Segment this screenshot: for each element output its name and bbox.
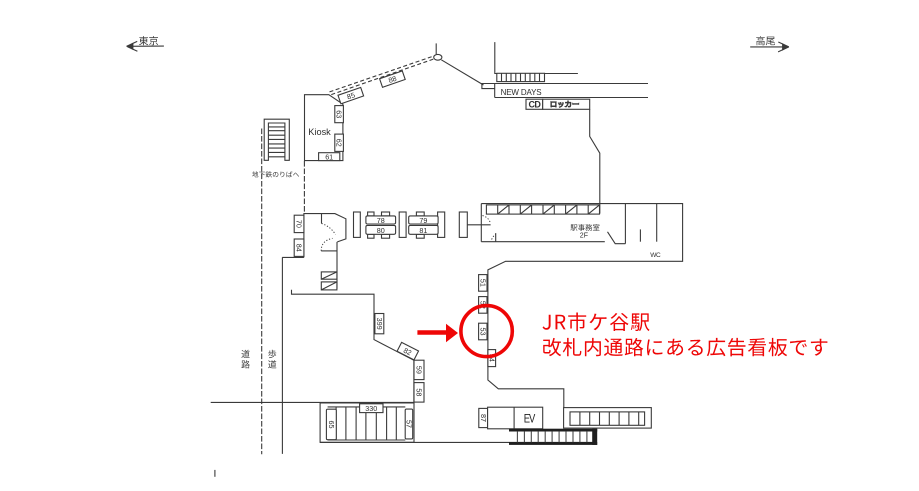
svg-text:78: 78 [377, 216, 385, 225]
svg-text:59: 59 [415, 366, 424, 374]
svg-text:53: 53 [478, 328, 487, 336]
svg-text:399: 399 [375, 318, 384, 330]
svg-text:NEW DAYS: NEW DAYS [501, 88, 542, 97]
svg-text:51: 51 [478, 279, 487, 287]
svg-text:2F: 2F [580, 233, 588, 240]
svg-text:CD: CD [528, 99, 541, 109]
svg-text:61: 61 [325, 152, 333, 161]
svg-text:Kiosk: Kiosk [308, 127, 331, 137]
svg-text:63: 63 [335, 110, 344, 118]
svg-text:65: 65 [327, 421, 336, 429]
svg-text:WC: WC [650, 252, 661, 259]
svg-text:EV: EV [524, 412, 536, 425]
svg-text:62: 62 [335, 139, 344, 147]
svg-text:81: 81 [419, 226, 427, 235]
svg-text:84: 84 [295, 244, 304, 252]
svg-text:79: 79 [419, 216, 427, 225]
svg-text:87: 87 [479, 414, 488, 422]
svg-text:57: 57 [405, 420, 414, 428]
svg-text:330: 330 [365, 404, 377, 413]
svg-text:80: 80 [377, 226, 385, 235]
svg-text:70: 70 [295, 220, 304, 228]
svg-text:58: 58 [415, 388, 424, 396]
